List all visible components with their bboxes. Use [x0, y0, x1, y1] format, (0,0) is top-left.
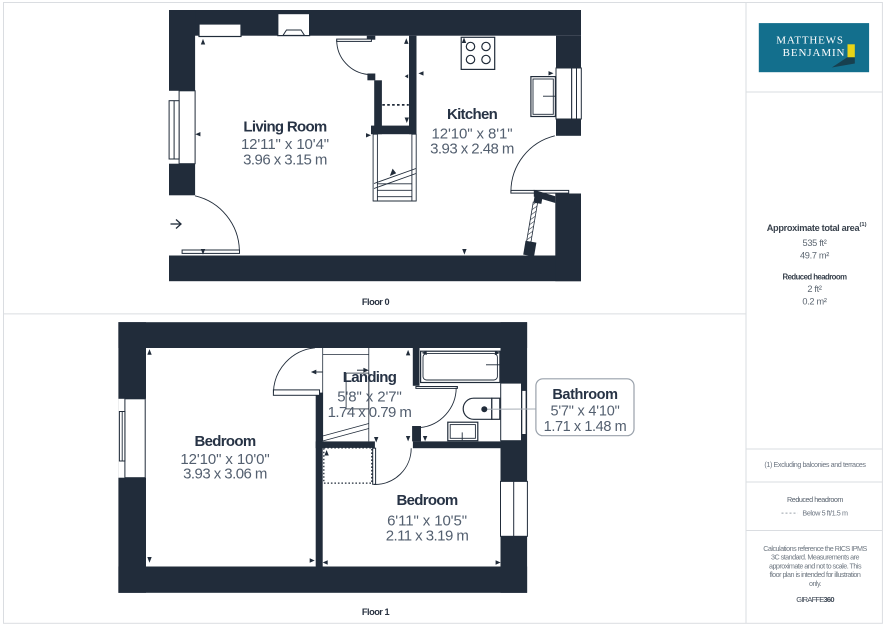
svg-text:2.11 x 3.19 m: 2.11 x 3.19 m	[386, 528, 469, 545]
svg-text:3.93 x 3.06 m: 3.93 x 3.06 m	[183, 466, 267, 483]
svg-text:Bedroom: Bedroom	[195, 433, 256, 450]
svg-text:3.93 x 2.48 m: 3.93 x 2.48 m	[430, 141, 514, 158]
svg-text:3C standard. Measurements are: 3C standard. Measurements are	[771, 553, 860, 562]
svg-text:Reduced headroom: Reduced headroom	[783, 272, 848, 281]
svg-text:Landing: Landing	[343, 369, 397, 386]
svg-text:GIRAFFE360: GIRAFFE360	[796, 595, 834, 604]
svg-text:12'11" x 10'4": 12'11" x 10'4"	[241, 136, 329, 153]
svg-text:5'7" x 4'10": 5'7" x 4'10"	[550, 403, 619, 419]
svg-text:Reduced headroom: Reduced headroom	[787, 495, 843, 504]
svg-text:0.2 m²: 0.2 m²	[802, 296, 826, 306]
svg-text:Kitchen: Kitchen	[447, 106, 498, 123]
svg-text:1.74 x 0.79 m: 1.74 x 0.79 m	[328, 404, 412, 421]
svg-text:only.: only.	[809, 579, 822, 588]
svg-text:(1) Excluding balconies and te: (1) Excluding balconies and terraces	[764, 460, 866, 469]
svg-text:Living Room: Living Room	[243, 119, 326, 136]
svg-text:Approximate total area: Approximate total area	[767, 223, 861, 233]
svg-text:Floor 0: Floor 0	[362, 297, 390, 307]
svg-text:MATTHEWS: MATTHEWS	[776, 35, 844, 47]
svg-text:Bedroom: Bedroom	[397, 492, 458, 509]
svg-text:3.96 x 3.15 m: 3.96 x 3.15 m	[243, 151, 327, 168]
svg-text:approximate and not to scale.: approximate and not to scale. This	[769, 561, 862, 570]
svg-text:Below 5 ft/1.5 m: Below 5 ft/1.5 m	[802, 508, 848, 517]
svg-text:1.71 x 1.48 m: 1.71 x 1.48 m	[544, 419, 627, 435]
svg-text:Calculations reference the RIC: Calculations reference the RICS IPMS	[763, 544, 867, 553]
svg-text:Floor 1: Floor 1	[362, 607, 390, 617]
svg-text:BENJAMIN: BENJAMIN	[783, 47, 846, 59]
svg-text:(1): (1)	[860, 222, 867, 228]
svg-text:535 ft²: 535 ft²	[803, 238, 827, 248]
svg-text:5'8" x 2'7": 5'8" x 2'7"	[337, 388, 401, 405]
svg-text:floor plan is intended for ill: floor plan is intended for illustration	[770, 570, 861, 579]
svg-text:Bathroom: Bathroom	[552, 387, 617, 403]
svg-text:2 ft²: 2 ft²	[807, 284, 822, 294]
svg-text:49.7 m²: 49.7 m²	[800, 251, 829, 261]
